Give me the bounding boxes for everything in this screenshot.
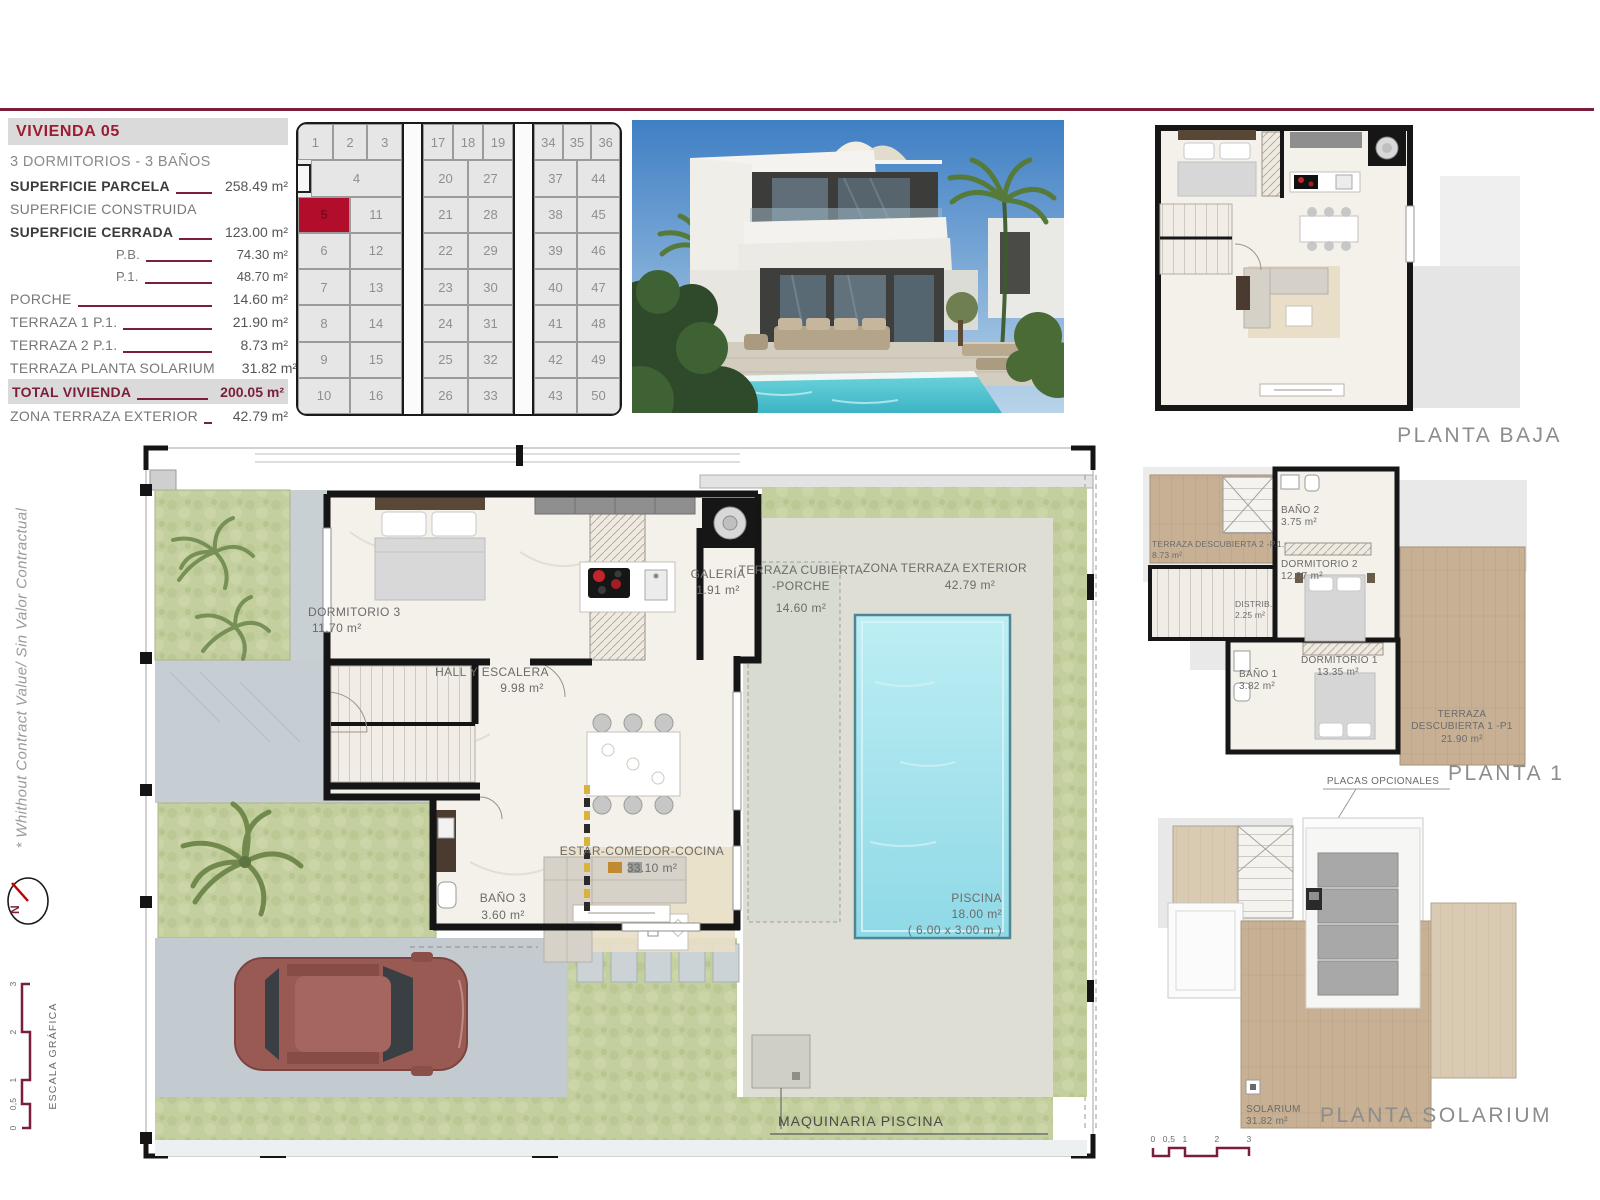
plot-14: 14 [350, 305, 402, 341]
label-terraza2-area: 8.73 m² [1152, 550, 1182, 560]
unit-title: VIVIENDA 05 [8, 118, 288, 145]
site-plan-grid: 1234511612713814915101617181920272128222… [296, 122, 622, 416]
escala-grafica-label: ESCALA GRÁFICA [46, 1002, 59, 1109]
surface-row: P.B.74.30 m² [8, 243, 288, 265]
surface-label: TERRAZA 1 P.1. [10, 314, 117, 330]
surface-table: SUPERFICIE PARCELA258.49 m²SUPERFICIE CO… [8, 174, 288, 427]
plot-41: 41 [534, 305, 577, 341]
plot-15: 15 [350, 342, 402, 378]
label-estar: ESTAR-COMEDOR-COCINA [560, 844, 724, 858]
site-entrance-stub [296, 164, 311, 192]
leader-line [204, 414, 212, 424]
label-dormitorio1-area: 13.35 m² [1317, 667, 1359, 678]
scale-bar-horizontal: 0 0,5 1 2 3 [1151, 1134, 1252, 1156]
surface-row: TERRAZA 2 P.1.8.73 m² [8, 333, 288, 356]
leader-line [179, 230, 212, 240]
surface-label: TERRAZA 2 P.1. [10, 337, 117, 353]
surface-value: 74.30 m² [218, 247, 288, 262]
label-maquinaria: MAQUINARIA PISCINA [778, 1113, 944, 1129]
plot-24: 24 [423, 305, 468, 341]
label-porche-2: -PORCHE [772, 579, 830, 593]
site-road [402, 124, 423, 414]
graphic-scale: 0 0,5 1 2 3 ESCALA GRÁFICA [0, 940, 120, 1135]
surface-value: 31.82 m² [227, 360, 297, 376]
brochure-page: VIVIENDA 05 3 DORMITORIOS - 3 BAÑOS SUPE… [0, 0, 1600, 1200]
surface-row: SUPERFICIE CONSTRUIDA [8, 197, 288, 220]
plot-13: 13 [350, 269, 402, 305]
leader-line [137, 390, 208, 400]
scale-tick: 0,5 [1163, 1134, 1175, 1144]
plot-9: 9 [298, 342, 350, 378]
label-porche-1: TERRAZA CUBIERTA [739, 563, 864, 577]
surface-row: TERRAZA 1 P.1.21.90 m² [8, 310, 288, 333]
surface-label: TERRAZA PLANTA SOLARIUM [10, 360, 215, 376]
north-compass: N [4, 874, 52, 928]
label-bano1: BAÑO 1 [1239, 667, 1278, 680]
label-dormitorio1: DORMITORIO 1 [1301, 655, 1378, 666]
site-block-2: 1718192027212822292330243125322633 [423, 124, 513, 414]
vscale-tick: 0,5 [8, 1098, 18, 1110]
main-floor-plan-drawing: DORMITORIO 3 11.70 m² HALL Y ESCALERA 9.… [140, 432, 1105, 1167]
leader-line [145, 274, 212, 284]
villa-photo [632, 120, 1064, 413]
surface-value: 8.73 m² [218, 337, 288, 353]
surface-row: TERRAZA PLANTA SOLARIUM31.82 m² [8, 356, 288, 379]
plot-16: 16 [350, 378, 402, 414]
label-piscina-dims: ( 6.00 x 3.00 m ) [908, 923, 1002, 937]
compass-icon: N [4, 874, 52, 928]
plot-5: 5 [298, 197, 350, 233]
label-piscina: PISCINA [951, 891, 1002, 905]
plot-27: 27 [468, 160, 513, 196]
plot-47: 47 [577, 269, 620, 305]
plot-30: 30 [468, 269, 513, 305]
surface-value: 48.70 m² [218, 269, 288, 284]
leader-line [123, 343, 212, 353]
vscale-tick: 0 [8, 1125, 18, 1130]
plot-48: 48 [577, 305, 620, 341]
plot-23: 23 [423, 269, 468, 305]
plot-18: 18 [453, 124, 483, 160]
surface-row: ZONA TERRAZA EXTERIOR42.79 m² [8, 404, 288, 427]
label-zona-terraza-area: 42.79 m² [945, 578, 996, 592]
label-solarium: SOLARIUM [1246, 1104, 1301, 1115]
leader-line [176, 184, 212, 194]
label-bano2-area: 3.75 m² [1281, 517, 1317, 528]
planta-1-drawing: TERRAZA DESCUBIERTA 2 -P.1. 8.73 m² BAÑO… [1135, 455, 1535, 790]
plot-43: 43 [534, 378, 577, 414]
plot-22: 22 [423, 233, 468, 269]
label-placas: PLACAS OPCIONALES [1327, 776, 1439, 787]
label-zona-terraza: ZONA TERRAZA EXTERIOR [863, 561, 1027, 575]
label-dormitorio2-area: 12.07 m² [1281, 571, 1323, 582]
site-block-3: 3435363744384539464047414842494350 [534, 124, 620, 414]
plot-2: 2 [333, 124, 368, 160]
main-floor-plan: DORMITORIO 3 11.70 m² HALL Y ESCALERA 9.… [140, 432, 1105, 1167]
surface-label: SUPERFICIE PARCELA [10, 178, 170, 194]
surface-row: PORCHE14.60 m² [8, 287, 288, 310]
surface-value: 42.79 m² [218, 408, 288, 424]
label-galeria: GALERÍA [691, 566, 746, 581]
plot-31: 31 [468, 305, 513, 341]
surface-row: TOTAL VIVIENDA200.05 m² [8, 379, 288, 404]
plot-45: 45 [577, 197, 620, 233]
label-piscina-area: 18.00 m² [951, 907, 1002, 921]
surface-row: SUPERFICIE CERRADA123.00 m² [8, 220, 288, 243]
compass-n-label: N [8, 905, 22, 914]
label-dormitorio2: DORMITORIO 2 [1281, 559, 1358, 570]
plot-20: 20 [423, 160, 468, 196]
plot-19: 19 [483, 124, 513, 160]
plot-42: 42 [534, 342, 577, 378]
plot-25: 25 [423, 342, 468, 378]
label-bano3-area: 3.60 m² [481, 908, 524, 922]
scale-tick: 2 [1215, 1134, 1220, 1144]
scale-tick: 3 [1247, 1134, 1252, 1144]
vscale-tick: 2 [8, 1029, 18, 1034]
plot-17: 17 [423, 124, 453, 160]
surface-label: P.B. [116, 247, 140, 262]
plot-38: 38 [534, 197, 577, 233]
plot-46: 46 [577, 233, 620, 269]
plot-26: 26 [423, 378, 468, 414]
plot-1: 1 [298, 124, 333, 160]
plot-7: 7 [298, 269, 350, 305]
plot-12: 12 [350, 233, 402, 269]
label-bano1-area: 3.82 m² [1239, 681, 1275, 692]
surface-value: 258.49 m² [218, 178, 288, 194]
leader-line [78, 297, 212, 307]
plot-10: 10 [298, 378, 350, 414]
surface-value: 21.90 m² [218, 314, 288, 330]
label-dormitorio3-area: 11.70 m² [312, 621, 362, 635]
plot-39: 39 [534, 233, 577, 269]
plot-3: 3 [367, 124, 402, 160]
planta-baja-title: PLANTA BAJA [1392, 424, 1562, 448]
label-terraza2: TERRAZA DESCUBIERTA 2 -P.1. [1152, 539, 1284, 549]
plot-21: 21 [423, 197, 468, 233]
label-bano3: BAÑO 3 [480, 891, 526, 905]
surface-label: ZONA TERRAZA EXTERIOR [10, 408, 198, 424]
surface-value: 14.60 m² [218, 291, 288, 307]
scale-tick: 1 [1183, 1134, 1188, 1144]
disclaimer-note: * Whithout Contract Value/ Sin Valor Con… [14, 549, 31, 849]
label-terraza1-2: DESCUBIERTA 1 -P1 [1411, 721, 1513, 732]
plot-50: 50 [577, 378, 620, 414]
plot-11: 11 [350, 197, 402, 233]
site-road [513, 124, 534, 414]
label-terraza1-area: 21.90 m² [1441, 734, 1483, 745]
plot-32: 32 [468, 342, 513, 378]
vscale-tick: 3 [8, 981, 18, 986]
site-block-1: 12345116127138149151016 [298, 124, 402, 414]
scale-tick: 0 [1151, 1134, 1156, 1144]
label-distrib: DISTRIB. [1235, 599, 1273, 609]
label-distrib-area: 2.25 m² [1235, 610, 1265, 620]
plot-49: 49 [577, 342, 620, 378]
planta-solarium-title: PLANTA SOLARIUM [1302, 1104, 1552, 1128]
surface-label: TOTAL VIVIENDA [12, 384, 131, 400]
surface-row: SUPERFICIE PARCELA258.49 m² [8, 174, 288, 197]
label-galeria-area: 1.91 m² [696, 583, 739, 597]
plot-36: 36 [591, 124, 620, 160]
label-dormitorio3: DORMITORIO 3 [308, 605, 401, 619]
plot-29: 29 [468, 233, 513, 269]
label-estar-area: 33.10 m² [627, 861, 678, 875]
label-hall: HALL Y ESCALERA [435, 665, 549, 679]
plot-8: 8 [298, 305, 350, 341]
surface-row: P.1.48.70 m² [8, 265, 288, 287]
label-hall-area: 9.98 m² [500, 681, 543, 695]
plot-4: 4 [311, 160, 402, 196]
surface-label: PORCHE [10, 291, 72, 307]
unit-subtitle: 3 DORMITORIOS - 3 BAÑOS [10, 154, 288, 170]
plot-37: 37 [534, 160, 577, 196]
label-porche-area: 14.60 m² [776, 601, 827, 615]
leader-line [146, 252, 212, 262]
plot-40: 40 [534, 269, 577, 305]
plan-planta-baja [1140, 116, 1525, 428]
surface-label: SUPERFICIE CERRADA [10, 224, 173, 240]
planta-baja-drawing [1140, 116, 1525, 426]
surface-value: 200.05 m² [214, 384, 284, 400]
graphic-scale-drawing: 0 0,5 1 2 3 ESCALA GRÁFICA [0, 940, 120, 1135]
vscale-tick: 1 [8, 1077, 18, 1082]
plot-28: 28 [468, 197, 513, 233]
label-solarium-area: 31.82 m² [1246, 1116, 1288, 1127]
header-rule [0, 108, 1594, 111]
surface-label: SUPERFICIE CONSTRUIDA [10, 201, 197, 217]
plot-33: 33 [468, 378, 513, 414]
label-terraza1-1: TERRAZA [1438, 709, 1487, 720]
plot-34: 34 [534, 124, 563, 160]
surface-label: P.1. [116, 269, 139, 284]
leader-line [123, 320, 212, 330]
villa-render-illustration [632, 120, 1064, 413]
surface-value: 123.00 m² [218, 224, 288, 240]
plan-planta-1: TERRAZA DESCUBIERTA 2 -P.1. 8.73 m² BAÑO… [1135, 455, 1535, 793]
info-panel: VIVIENDA 05 3 DORMITORIOS - 3 BAÑOS SUPE… [8, 118, 288, 427]
plot-6: 6 [298, 233, 350, 269]
plot-44: 44 [577, 160, 620, 196]
label-bano2: BAÑO 2 [1281, 503, 1320, 516]
plot-35: 35 [563, 124, 592, 160]
